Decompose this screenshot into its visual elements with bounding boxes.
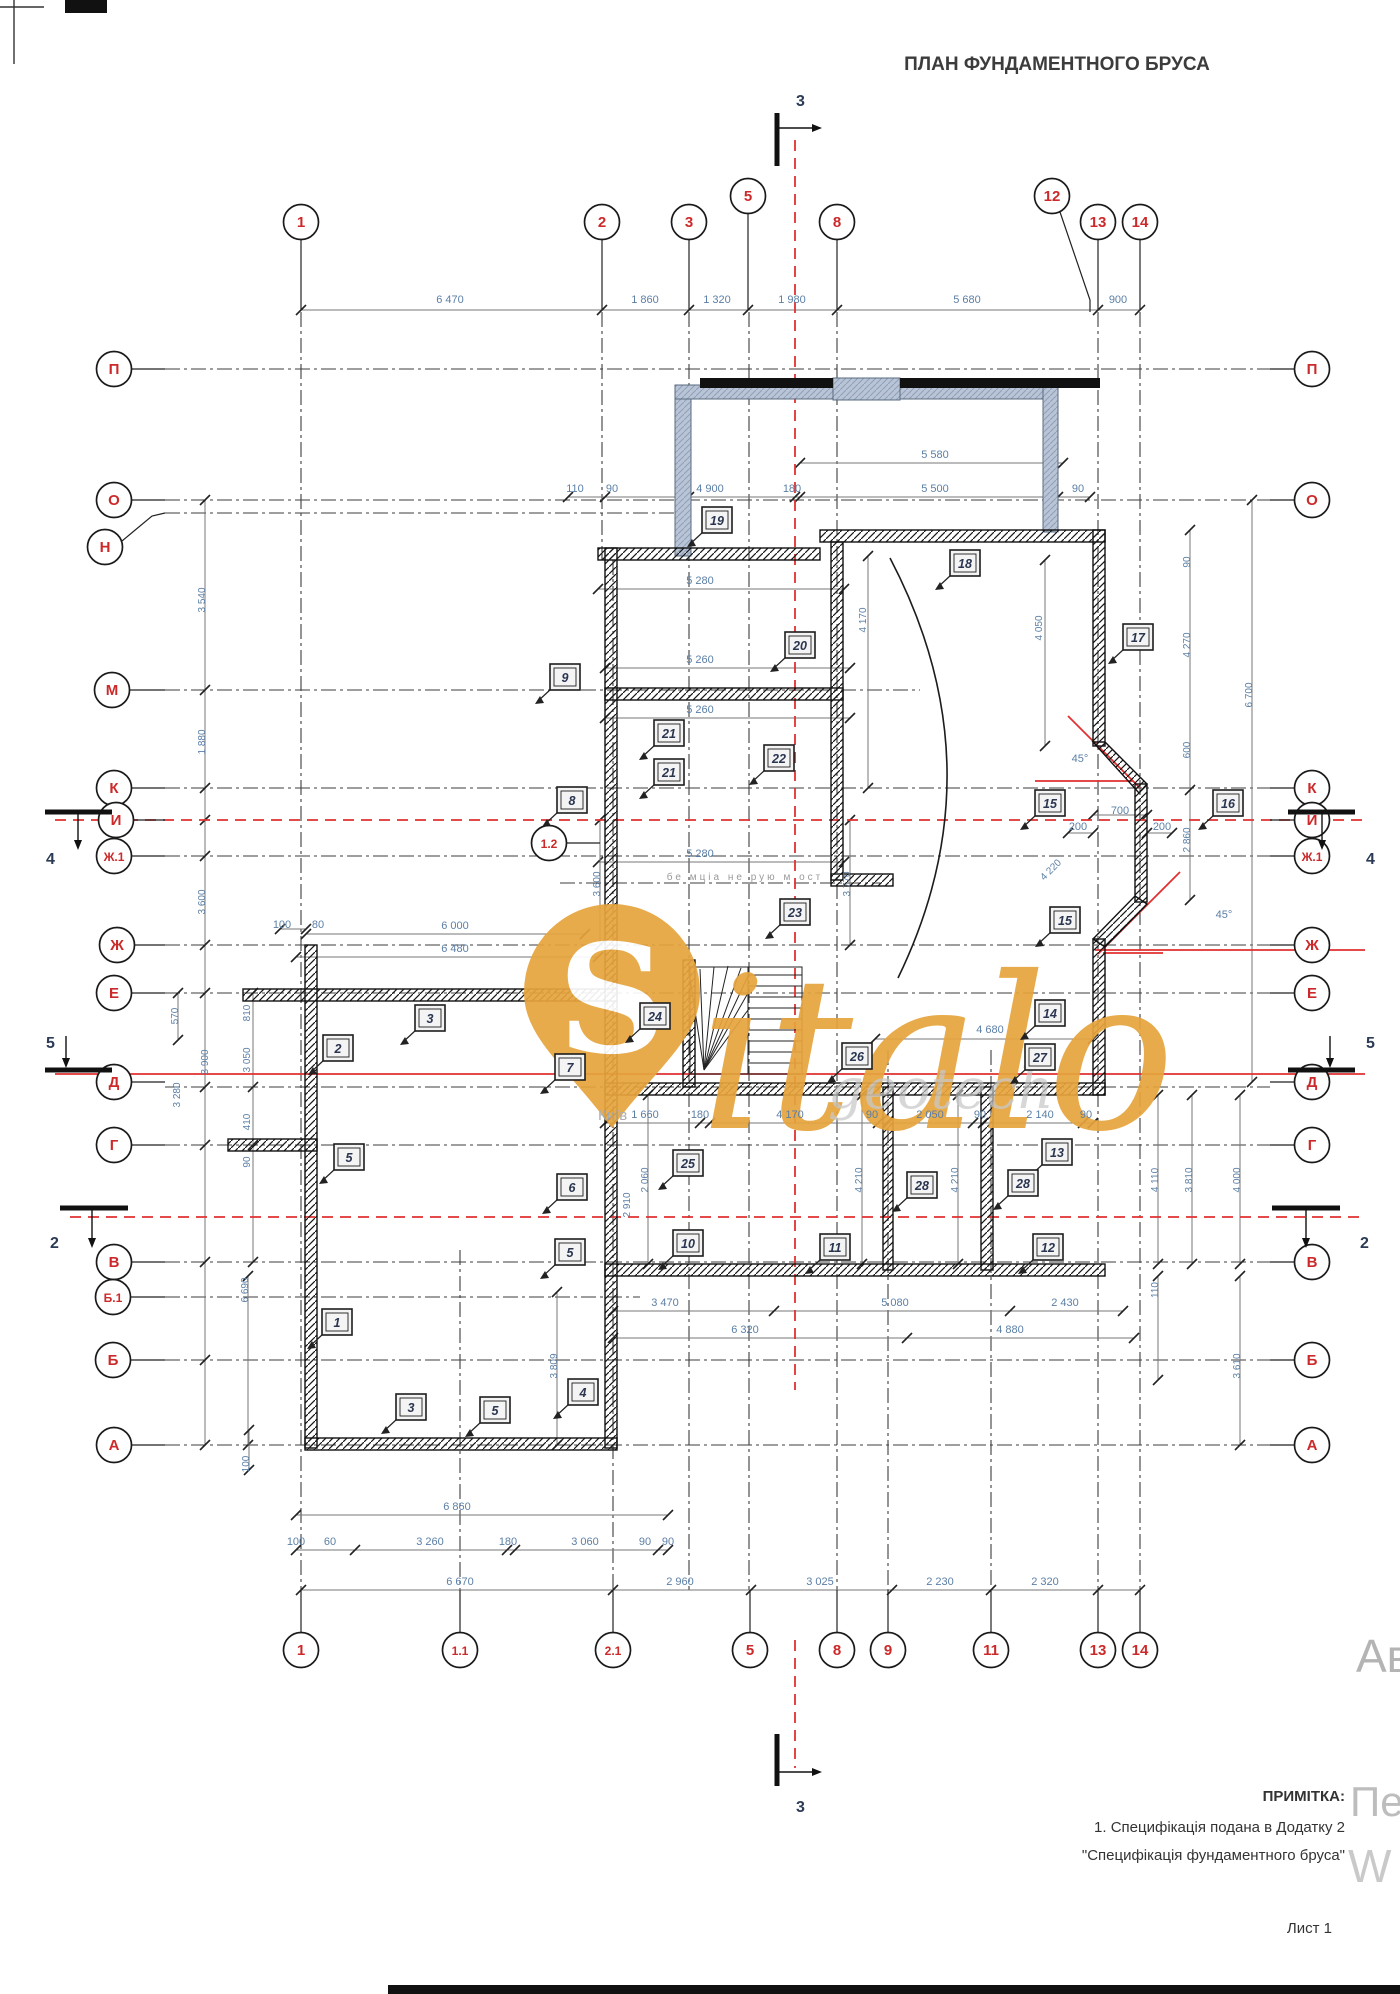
dim-text: 60 xyxy=(324,1536,336,1548)
dim-text: 180 xyxy=(499,1536,517,1548)
dim-text: 4 170 xyxy=(776,1109,804,1121)
dim-text: 1 660 xyxy=(631,1109,659,1121)
detail-number: 28 xyxy=(914,1179,929,1193)
detail-number: 15 xyxy=(1058,914,1073,928)
detail-number: 1 xyxy=(334,1316,341,1330)
axis-label: 5 xyxy=(746,1642,754,1659)
axis-label: В xyxy=(109,1254,120,1271)
detail-number: 7 xyxy=(567,1061,575,1075)
dim-text: 6 000 xyxy=(441,920,469,932)
gray-wall xyxy=(1043,385,1058,532)
axis-label: 11 xyxy=(983,1642,999,1659)
dim-text: 700 xyxy=(1111,805,1129,817)
dim-text: 180 xyxy=(783,483,801,495)
wall xyxy=(1093,530,1105,746)
axis-label: 14 xyxy=(1132,214,1149,231)
notes-line-1: 1. Специфікація подана в Додатку 2 xyxy=(1094,1819,1345,1836)
axis-bubble: В xyxy=(97,1245,166,1280)
detail-marker: 9 xyxy=(535,664,580,704)
wall-diagonal xyxy=(1093,742,1147,793)
dim-text: 4 680 xyxy=(976,1024,1004,1036)
detail-number: 23 xyxy=(787,906,802,920)
foundation-plan-drawing: S italo geotech Київ 6 4701 8601 3201 98… xyxy=(0,0,1400,1994)
axis-label: И xyxy=(1307,812,1318,829)
dim-text: 3 280 xyxy=(172,1082,183,1107)
dim-text: 100 xyxy=(287,1536,305,1548)
dim-text: 1 880 xyxy=(197,729,208,754)
dim-text: 4 050 xyxy=(1034,615,1045,640)
detail-number: 5 xyxy=(346,1151,354,1165)
wall xyxy=(598,548,820,560)
axis-label: Ж.1 xyxy=(1301,850,1323,864)
dim-text: 570 xyxy=(170,1007,181,1024)
axis-label: 1.2 xyxy=(541,837,558,851)
detail-marker: 21 xyxy=(639,720,684,760)
detail-number: 2 xyxy=(334,1042,342,1056)
section-label: 5 xyxy=(46,1035,55,1052)
axis-label: М xyxy=(106,682,119,699)
curved-wall-arc xyxy=(890,558,947,978)
axis-label: П xyxy=(1307,361,1318,378)
dim-text: 4 210 xyxy=(950,1167,961,1192)
detail-number: 26 xyxy=(849,1050,865,1064)
detail-marker: 21 xyxy=(639,759,684,799)
dim-text: 3 260 xyxy=(416,1536,444,1548)
detail-number: 13 xyxy=(1050,1146,1064,1160)
dim-text: 2 230 xyxy=(926,1576,954,1588)
axis-bubble: 1.1 xyxy=(443,1590,478,1668)
dim-text: 3 060 xyxy=(571,1536,599,1548)
axis-bubble: А xyxy=(1270,1428,1330,1463)
black-bar xyxy=(700,378,833,388)
dim-text: 3 610 xyxy=(1232,1353,1243,1378)
axis-bubble: 14 xyxy=(1123,1590,1158,1668)
axis-label: 2 xyxy=(598,214,606,231)
detail-number: 14 xyxy=(1043,1007,1057,1021)
detail-marker: 17 xyxy=(1108,624,1153,664)
axis-bubble: И xyxy=(1270,803,1330,838)
dim-text: 6 480 xyxy=(441,943,469,955)
gray-wall xyxy=(833,378,900,400)
detail-number: 28 xyxy=(1015,1177,1030,1191)
axis-label: Г xyxy=(1308,1137,1317,1154)
dim-text: 2 320 xyxy=(1031,1576,1059,1588)
dim-text: 5 260 xyxy=(686,654,714,666)
detail-number: 17 xyxy=(1131,631,1146,645)
section-label: 5 xyxy=(1366,1035,1375,1052)
dim-text: 3 810 xyxy=(1184,1167,1195,1192)
axis-label: К xyxy=(109,780,119,797)
detail-marker: 6 xyxy=(542,1174,587,1214)
axis-label: А xyxy=(109,1437,120,1454)
section-label: 4 xyxy=(46,851,55,868)
dim-text: 90 xyxy=(662,1536,674,1548)
detail-marker: 5 xyxy=(465,1397,510,1437)
dim-text: 5 280 xyxy=(686,575,714,587)
dim-text: 90 xyxy=(866,1109,878,1121)
axis-bubble: К xyxy=(97,771,166,806)
notes-heading: ПРИМІТКА: xyxy=(1263,1788,1345,1805)
section-flag-arrow xyxy=(62,1058,70,1068)
axis-label: Д xyxy=(1307,1074,1318,1091)
section-label: 2 xyxy=(50,1235,59,1252)
axis-bubble: 3 xyxy=(672,205,707,311)
axis-bubble: Ж xyxy=(1270,928,1330,963)
axis-bubble: П xyxy=(1270,352,1330,387)
section-flag-arrow xyxy=(1326,1058,1334,1068)
axis-label: 14 xyxy=(1132,1642,1149,1659)
dim-text: 6 670 xyxy=(446,1576,474,1588)
dim-text: 6 470 xyxy=(436,294,464,306)
section-flag-arrow xyxy=(74,840,82,850)
axis-label: Б xyxy=(108,1352,119,1369)
wall xyxy=(605,1264,1105,1276)
dim-text: 3 025 xyxy=(806,1576,834,1588)
section-flag-arrow xyxy=(812,124,822,132)
axis-bubble: 11 xyxy=(974,1590,1009,1668)
black-bar xyxy=(900,378,1100,388)
dim-text: 5 280 xyxy=(686,848,714,860)
dim-text: 5 680 xyxy=(953,294,981,306)
axis-bubble: В xyxy=(1270,1245,1330,1280)
axis-bubble: Ж xyxy=(100,928,166,963)
section-label: 3 xyxy=(796,93,805,110)
edge-watermark-letter: Ав xyxy=(1356,1630,1400,1682)
detail-number: 5 xyxy=(567,1246,575,1260)
axis-bubble: 1 xyxy=(284,205,319,311)
dim-text: 4 220 xyxy=(1038,857,1064,883)
dim-text: 200 xyxy=(1153,821,1171,833)
drawing-title: ПЛАН ФУНДАМЕНТНОГО БРУСА xyxy=(904,54,1210,75)
detail-marker: 5 xyxy=(319,1144,364,1184)
axis-bubble: 1 xyxy=(284,1590,319,1668)
detail-number: 21 xyxy=(661,727,676,741)
axis-label: 13 xyxy=(1090,214,1107,231)
axis-bubble: 9 xyxy=(871,1590,906,1668)
watermark-word: italo xyxy=(700,931,1175,1178)
gray-wall xyxy=(675,385,691,556)
dim-text: 6 690 xyxy=(240,1277,251,1302)
axis-label: Б xyxy=(1307,1352,1318,1369)
dim-text: 80 xyxy=(312,919,324,931)
axis-label: И xyxy=(111,812,122,829)
detail-number: 5 xyxy=(492,1404,500,1418)
axis-bubble: Е xyxy=(97,976,166,1011)
detail-marker: 16 xyxy=(1198,790,1243,830)
detail-number: 4 xyxy=(579,1386,587,1400)
axis-label: 1 xyxy=(297,1642,305,1659)
detail-number: 27 xyxy=(1032,1051,1048,1065)
dim-text: 2 140 xyxy=(1026,1109,1054,1121)
axis-bubble: К xyxy=(1270,771,1330,806)
sheet-number: Лист 1 xyxy=(1287,1920,1332,1937)
axis-bubble: Н xyxy=(88,513,166,565)
dim-text: 4 000 xyxy=(1232,1167,1243,1192)
dim-text: 3 600 xyxy=(592,871,603,896)
dim-text: 1 320 xyxy=(703,294,731,306)
dim-text: 4 900 xyxy=(696,483,724,495)
dim-text: 6 860 xyxy=(443,1501,471,1513)
dim-text: 90 xyxy=(606,483,618,495)
detail-marker: 4 xyxy=(553,1379,598,1419)
axis-bubble: 13 xyxy=(1081,1590,1116,1668)
wall xyxy=(228,1139,317,1151)
detail-number: 16 xyxy=(1221,797,1236,811)
detail-marker: 3 xyxy=(381,1394,426,1434)
axis-bubble: Г xyxy=(97,1128,166,1163)
wall xyxy=(831,542,843,880)
axis-label: В xyxy=(1307,1254,1318,1271)
axis-bubble: Б.1 xyxy=(96,1280,166,1315)
dim-text: 4 170 xyxy=(858,607,869,632)
axis-bubble: Б xyxy=(1270,1343,1330,1378)
section-label: 2 xyxy=(1360,1235,1369,1252)
axis-bubble: О xyxy=(1270,483,1330,518)
dim-text: 1 860 xyxy=(631,294,659,306)
wall xyxy=(305,1438,617,1450)
dim-text: 180 xyxy=(691,1109,709,1121)
detail-number: 20 xyxy=(792,639,807,653)
axis-bubble: И xyxy=(99,803,166,838)
axis-bubble: П xyxy=(97,352,166,387)
axis-label: Е xyxy=(1307,985,1317,1002)
dim-text: 4 270 xyxy=(1182,632,1193,657)
axis-bubble: 2 xyxy=(585,205,620,311)
detail-marker: 22 xyxy=(749,745,794,785)
dim-text: 810 xyxy=(242,1004,253,1021)
detail-marker: 8 xyxy=(542,787,587,827)
axis-label: Д xyxy=(109,1074,120,1091)
black-bar xyxy=(388,1985,1400,1994)
axis-label: Е xyxy=(109,985,119,1002)
dim-text: 100 xyxy=(273,919,291,931)
axis-label: Ж xyxy=(1304,937,1319,954)
axis-label: 8 xyxy=(833,1642,841,1659)
axis-bubble: Г xyxy=(1270,1128,1330,1163)
axis-bubble: Е xyxy=(1270,976,1330,1011)
dim-text: 110 xyxy=(566,483,584,495)
dim-text: 1 980 xyxy=(778,294,806,306)
axis-bubble: Б xyxy=(96,1343,166,1378)
dim-text: 45° xyxy=(1216,909,1233,921)
edge-watermark-letter: W xyxy=(1348,1840,1392,1892)
detail-marker: 19 xyxy=(687,507,732,547)
dim-text: 3 050 xyxy=(242,1047,253,1072)
dim-text: 3 900 xyxy=(200,1049,211,1074)
dim-text: 900 xyxy=(1109,294,1127,306)
axis-label: Г xyxy=(110,1137,119,1154)
drawing-page: S italo geotech Київ 6 4701 8601 3201 98… xyxy=(0,0,1400,1994)
detail-number: 12 xyxy=(1041,1241,1055,1255)
axis-label: Н xyxy=(100,539,111,556)
detail-number: 21 xyxy=(661,766,676,780)
axis-annotation: бе мціа не рую м ост xyxy=(667,871,824,883)
axis-bubble: 1.2 xyxy=(532,826,601,861)
detail-number: 19 xyxy=(710,514,724,528)
detail-marker: 18 xyxy=(935,550,980,590)
section-label: 3 xyxy=(796,1799,805,1816)
detail-number: 3 xyxy=(427,1012,434,1026)
dim-text: 90 xyxy=(1080,1109,1092,1121)
dim-text: 100 xyxy=(241,1455,252,1472)
notes-block: ПРИМІТКА: 1. Специфікація подана в Додат… xyxy=(1082,1788,1345,1937)
dim-text: 3 809 xyxy=(549,1353,560,1378)
dim-text: 2 960 xyxy=(666,1576,694,1588)
wall xyxy=(820,530,1105,542)
detail-number: 6 xyxy=(569,1181,577,1195)
detail-number: 24 xyxy=(647,1010,662,1024)
detail-number: 9 xyxy=(562,671,569,685)
dim-text: 2 430 xyxy=(1051,1297,1079,1309)
dim-text: 90 xyxy=(1182,556,1193,568)
axis-label: 2.1 xyxy=(605,1644,622,1658)
axis-label: 1.1 xyxy=(452,1644,469,1658)
dim-text: 4 210 xyxy=(854,1167,865,1192)
axis-bubble: 5 xyxy=(731,179,766,311)
watermark: S italo geotech Київ xyxy=(524,904,1175,1178)
dim-text: 600 xyxy=(1182,741,1193,758)
axis-bubble: М xyxy=(95,673,166,708)
dim-text: 5 580 xyxy=(921,449,949,461)
dim-text: 45° xyxy=(1072,753,1089,765)
axis-bubble: 14 xyxy=(1123,205,1158,311)
dim-text: 2 910 xyxy=(622,1192,633,1217)
section-flag-arrow xyxy=(812,1768,822,1776)
axis-label: 9 xyxy=(884,1642,892,1659)
dim-text: 90 xyxy=(242,1156,253,1168)
detail-marker: 28 xyxy=(892,1172,937,1212)
detail-number: 22 xyxy=(771,752,786,766)
wall xyxy=(305,945,317,1448)
axis-label: Ж.1 xyxy=(103,850,125,864)
dim-text: 5 080 xyxy=(881,1297,909,1309)
watermark-city: Київ xyxy=(598,1107,627,1124)
axis-label: 1 xyxy=(297,214,305,231)
dim-text: 90 xyxy=(974,1109,986,1121)
detail-number: 18 xyxy=(958,557,972,571)
dim-text: 3 540 xyxy=(197,587,208,612)
dim-text: 6 700 xyxy=(1244,682,1255,707)
axis-label: О xyxy=(108,492,120,509)
wall xyxy=(831,874,893,886)
section-flag-arrow xyxy=(88,1238,96,1248)
detail-number: 11 xyxy=(829,1241,842,1255)
axis-label: Ж xyxy=(109,937,124,954)
axis-label: А xyxy=(1307,1437,1318,1454)
dim-text: 2 050 xyxy=(916,1109,944,1121)
detail-marker: 25 xyxy=(658,1150,703,1190)
detail-number: 8 xyxy=(569,794,576,808)
axis-bubble: 5 xyxy=(733,1590,768,1668)
axis-bubble: А xyxy=(97,1428,166,1463)
detail-marker: 15 xyxy=(1020,790,1065,830)
dim-text: 200 xyxy=(1069,821,1087,833)
dim-text: 90 xyxy=(1072,483,1084,495)
section-label: 4 xyxy=(1366,851,1375,868)
dim-text: 2 060 xyxy=(640,1167,651,1192)
dim-text: 3 770 xyxy=(842,871,853,896)
detail-number: 15 xyxy=(1043,797,1058,811)
axis-label: 8 xyxy=(833,214,841,231)
dim-text: 5 500 xyxy=(921,483,949,495)
axis-bubble: 12 xyxy=(1035,179,1091,313)
axis-label: О xyxy=(1306,492,1318,509)
dim-text: 4 110 xyxy=(1150,1167,1161,1192)
axis-label: К xyxy=(1307,780,1317,797)
notes-line-2: "Специфікація фундаментного бруса" xyxy=(1082,1847,1345,1864)
axis-label: 5 xyxy=(744,188,752,205)
edge-watermark-letter: Пе xyxy=(1350,1778,1400,1825)
axis-bubble: Ж.1 xyxy=(97,839,166,874)
wall xyxy=(1135,784,1147,902)
dim-text: 410 xyxy=(242,1113,253,1130)
dim-text: 90 xyxy=(639,1536,651,1548)
detail-number: 3 xyxy=(408,1401,415,1415)
axis-bubble: 8 xyxy=(820,1590,855,1668)
dim-text: 5 260 xyxy=(686,704,714,716)
axis-label: 12 xyxy=(1044,188,1061,205)
wall xyxy=(605,688,843,700)
axis-label: Б.1 xyxy=(104,1291,123,1305)
detail-marker: 3 xyxy=(400,1005,445,1045)
detail-marker: 20 xyxy=(770,632,815,672)
axis-label: 13 xyxy=(1090,1642,1107,1659)
axis-label: 3 xyxy=(685,214,693,231)
axis-label: П xyxy=(109,361,120,378)
dim-text: 4 880 xyxy=(996,1324,1024,1336)
dim-text: 3 470 xyxy=(651,1297,679,1309)
dim-text: 2 860 xyxy=(1182,827,1193,852)
axis-leader xyxy=(122,513,165,541)
dim-text: 110 xyxy=(1150,1282,1161,1298)
black-bar xyxy=(65,0,107,13)
detail-number: 10 xyxy=(681,1237,695,1251)
axis-bubble: О xyxy=(97,483,166,518)
dim-text: 3 600 xyxy=(197,889,208,914)
axis-bubble: 2.1 xyxy=(596,1590,631,1668)
detail-marker: 5 xyxy=(540,1239,585,1279)
detail-number: 25 xyxy=(680,1157,696,1171)
dim-text: 6 320 xyxy=(731,1324,759,1336)
axis-bubble: 8 xyxy=(820,205,855,311)
